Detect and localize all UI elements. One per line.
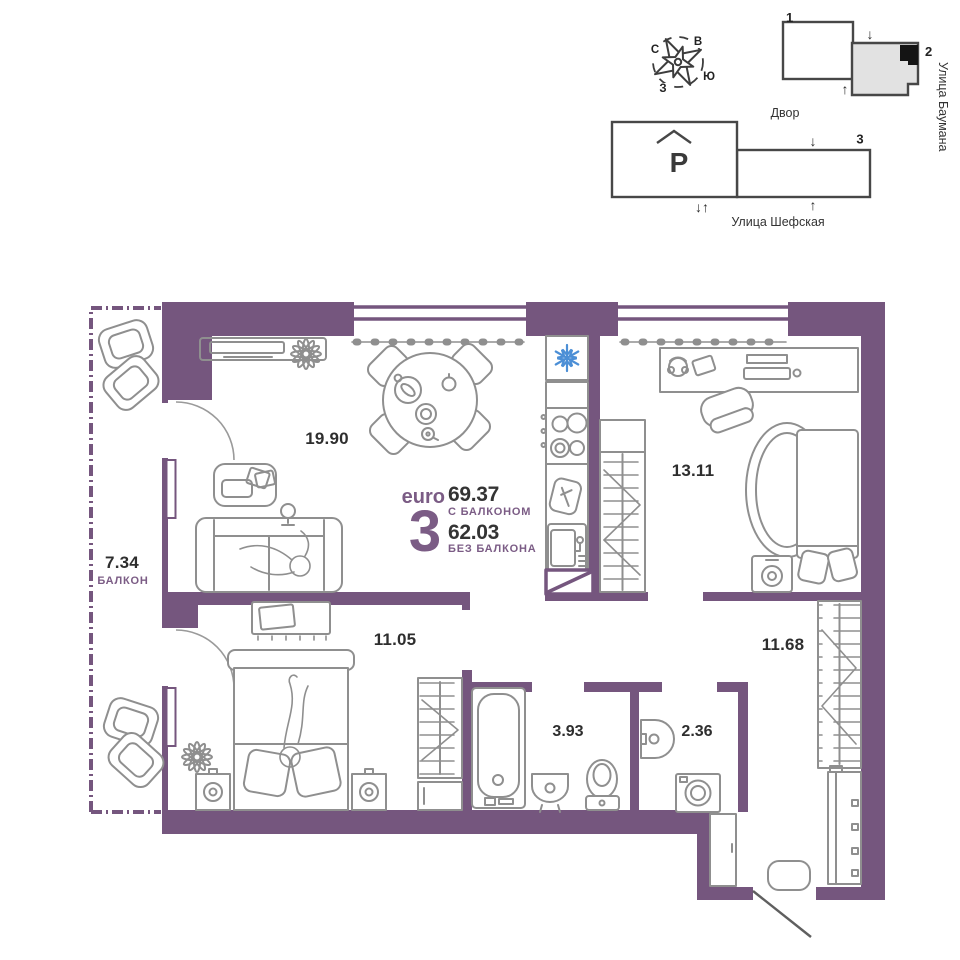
bathroom-sink [532, 774, 568, 812]
building-1 [783, 22, 853, 79]
balcony-door-living [167, 402, 235, 518]
balcony-chair [96, 317, 163, 414]
compass-west-label: З [658, 83, 667, 95]
building-3 [737, 150, 870, 197]
balcony-caption: БАЛКОН [97, 575, 148, 587]
hallway-cabinet [710, 814, 736, 886]
toilet [586, 760, 619, 810]
arrow-down-icon: ↓ [810, 133, 817, 149]
area-without-balcony-caption: БЕЗ БАЛКОНА [448, 543, 536, 555]
desk [660, 348, 858, 392]
floor-plan-page: 1 2 3 Двор Улица Шефская Улица Баумана P… [0, 0, 960, 960]
compass-east-label: В [693, 36, 703, 48]
yard-label: Двор [771, 106, 800, 120]
entrance-door-swing [753, 891, 811, 937]
speaker-nightstand [752, 556, 792, 592]
nightstand [196, 769, 230, 810]
street-baumana-label: Улица Баумана [936, 62, 950, 152]
arrow-up-icon: ↑ [810, 197, 817, 213]
closet-wardrobe [418, 678, 462, 810]
fridge [546, 336, 588, 380]
wardrobe [600, 420, 645, 592]
corner-sink [641, 720, 674, 758]
apartment-rooms-count: 3 [409, 503, 441, 561]
coffee-table [214, 464, 276, 506]
washing-machine [676, 774, 720, 812]
pouf [768, 861, 810, 890]
bed-small [228, 650, 354, 810]
kitchen-sink [548, 524, 586, 572]
arrow-down-icon: ↓ [867, 26, 874, 42]
living-kitchen-area-label: 19.90 [305, 429, 349, 449]
building-2-label: 2 [925, 44, 932, 59]
balcony-area-label: 7.34 [105, 553, 139, 573]
hallway-area-label: 11.68 [762, 635, 805, 655]
dining-table [365, 341, 496, 458]
vent-shaft [546, 570, 593, 594]
window-bedroom [618, 307, 788, 319]
cutting-board [548, 477, 582, 516]
bedroom-small-area-label: 11.05 [374, 630, 417, 650]
arrow-up-icon: ↑ [842, 81, 849, 97]
bedroom-large-area-label: 13.11 [672, 461, 715, 481]
sofa [196, 518, 342, 592]
area-with-balcony: 69.37 [448, 483, 499, 507]
bathroom-area-label: 3.93 [552, 723, 583, 741]
building-1-label: 1 [786, 10, 793, 25]
arrow-down-up-icon: ↓↑ [695, 199, 709, 215]
compass-north-label: С [650, 44, 660, 56]
plant-icon [182, 742, 212, 772]
compass-south-label: Ю [702, 71, 716, 83]
balcony-door-bedroom [167, 630, 235, 746]
window-living [354, 307, 526, 319]
area-with-balcony-caption: С БАЛКОНОМ [448, 506, 531, 518]
plant-icon [291, 339, 321, 369]
wc-area-label: 2.36 [681, 723, 712, 741]
stove [542, 408, 589, 464]
street-shefskaya-label: Улица Шефская [731, 215, 824, 229]
parking-label: P [670, 147, 689, 179]
area-without-balcony: 62.03 [448, 521, 499, 545]
bathtub [472, 688, 525, 808]
building-3-label: 3 [856, 132, 863, 147]
nightstand [352, 769, 386, 810]
shoe-bench [828, 766, 861, 884]
dresser-tv [252, 602, 330, 640]
hallway-wardrobe [818, 601, 861, 768]
balcony-chair [101, 695, 168, 791]
